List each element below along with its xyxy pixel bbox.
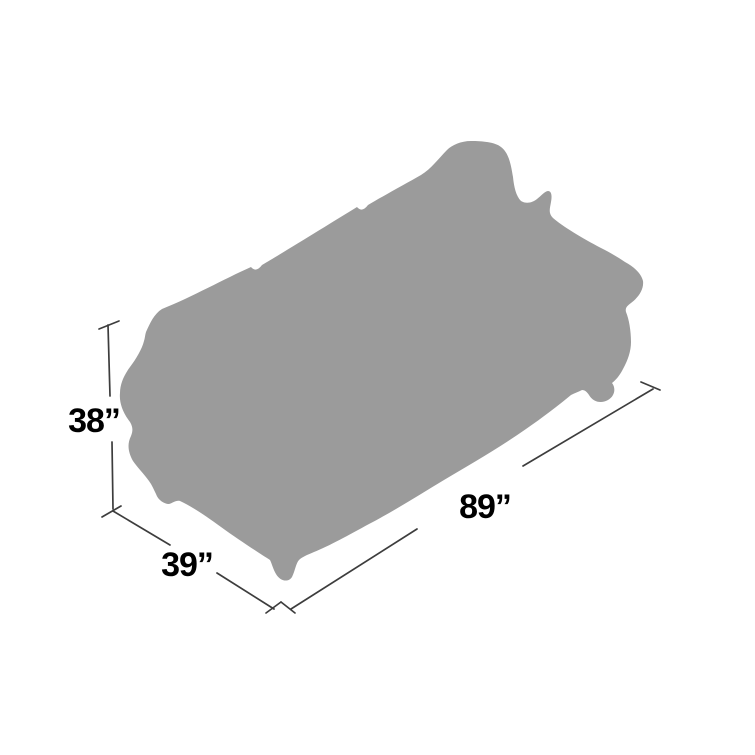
sofa-dimensions-diagram: 38” 39” 89” [0,0,755,755]
height-top-tick [99,321,119,329]
height-dimension-label: 38” [68,402,120,440]
depth-dimension-label: 39” [161,546,213,584]
depth-end-tick [266,602,281,613]
sofa-silhouette [120,141,643,581]
width-end-tick [641,382,660,390]
diagram-svg: 38” 39” 89” [0,0,755,755]
height-bottom-tick [102,506,121,517]
width-dimension-label: 89” [459,488,511,526]
